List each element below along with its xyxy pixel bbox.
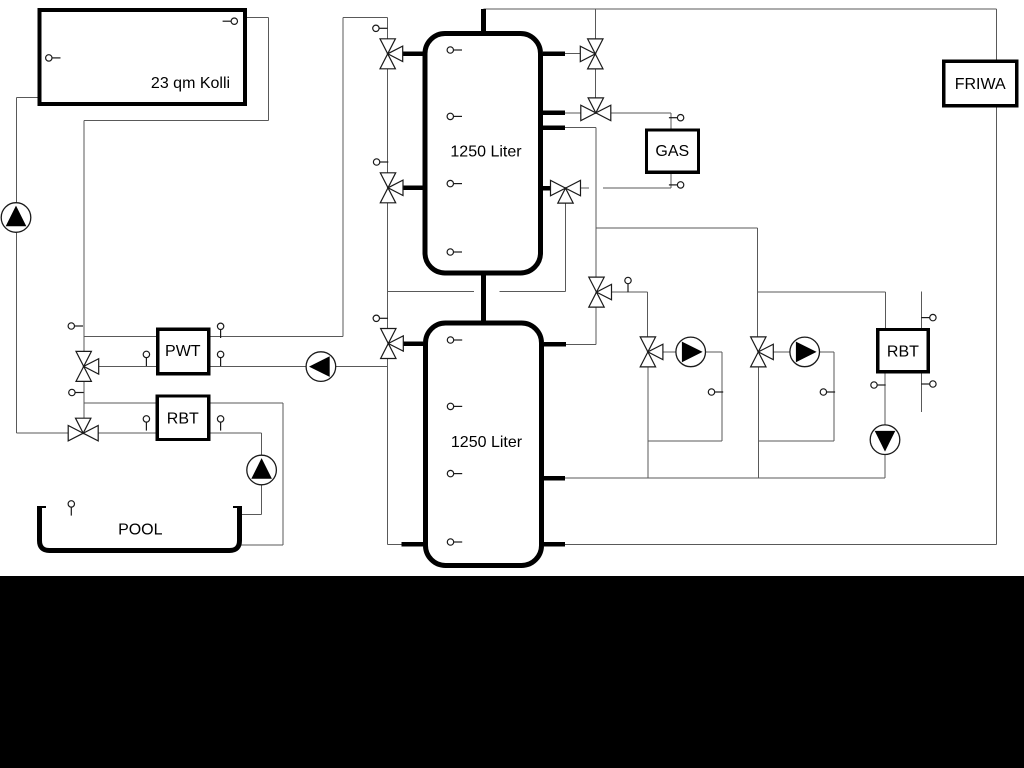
svg-text:PWT: PWT	[165, 343, 201, 360]
svg-text:1250 Liter: 1250 Liter	[450, 144, 522, 161]
svg-text:23 qm Kolli: 23 qm Kolli	[151, 75, 230, 92]
svg-text:RBT: RBT	[887, 343, 919, 360]
svg-text:RBT: RBT	[167, 411, 199, 428]
svg-text:1250 Liter: 1250 Liter	[451, 434, 523, 451]
svg-text:POOL: POOL	[118, 522, 163, 539]
svg-text:GAS: GAS	[655, 143, 689, 160]
svg-text:FRIWA: FRIWA	[955, 76, 1006, 93]
